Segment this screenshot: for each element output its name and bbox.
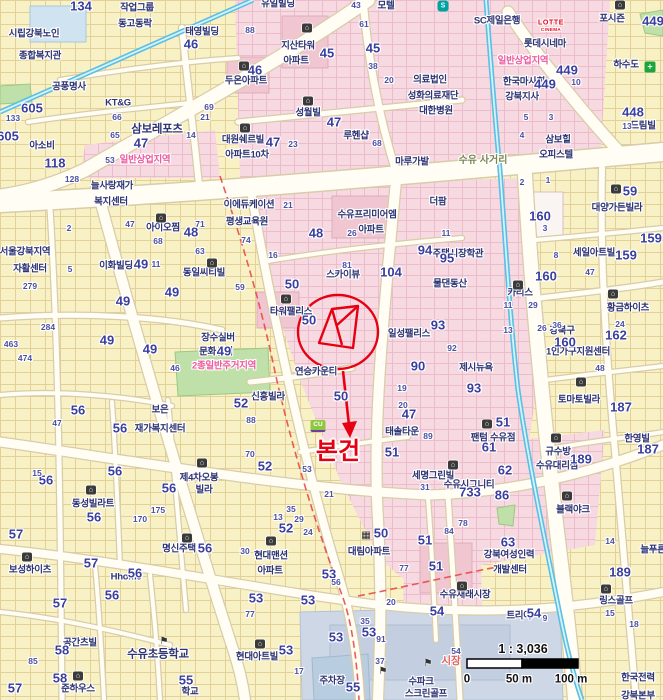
flag-icon: ⚑ [424,659,433,669]
map-label: 187 [637,443,659,456]
map-label: 세일아트빌 [573,248,615,258]
map-label: 14 [605,537,614,546]
map-label: 38 [368,62,377,71]
map-label: 733 [459,486,481,499]
scale-ratio: 1 : 3,036 [498,643,547,656]
map-label: 57 [8,682,22,695]
map-label: 46 [248,64,262,77]
map-label: 57 [84,557,98,570]
map-label: 56 [113,422,127,435]
building-icon: ⌂ [608,290,618,299]
map-label: 160 [535,270,557,283]
map-label: 53 [105,156,114,165]
map-label: 29 [528,301,537,310]
map-label: 53 [249,592,263,605]
map-label: 15 [32,469,41,478]
map-label: 47 [52,419,61,428]
map-label: 9 [543,614,548,623]
map-label: 서울강북지역 [0,247,50,257]
map-label: 개발센터 [493,565,527,575]
map-label: 카리스 [507,288,532,298]
map-label: 20 [386,598,395,607]
map-label: 오피스텔 [539,150,573,160]
map-label: 3 [543,224,548,233]
map-label: 71 [195,220,204,229]
map-label: 복지센터 [94,197,128,207]
map-label: 46 [170,364,179,373]
map-label: 링스골프 [599,596,633,606]
map-label: 93 [467,382,481,395]
building-icon: ⌂ [513,281,523,290]
map-label: 36 [552,321,561,330]
map-label: 강북본부 [621,691,655,700]
scale-tick-100: 100 m [555,674,588,686]
map-label: 종합복지관 [19,51,61,61]
map-label: 93 [431,319,445,332]
map-label: 유일빌딩 [261,0,295,9]
map-label: 45 [320,47,334,60]
map-label: 이에듀케이션 [224,200,275,210]
building-icon: ⌂ [482,420,492,429]
map-label: 170 [133,515,147,524]
map-label: 57 [9,528,23,541]
map-label: 20 [398,401,407,410]
building-icon: ⌂ [239,62,249,71]
map-label: 2 [67,224,72,233]
subject-property-label: 본건 [316,440,360,464]
map-label: 53 [302,465,311,474]
map-label: 58 [53,672,67,685]
map-label: 175 [151,506,165,515]
map-label: 29 [294,515,303,524]
map-label: 47 [585,268,594,277]
map-label: 47 [266,136,280,149]
map-label: 23 [288,140,297,149]
map-label: 제4차오봉 [180,473,219,483]
map-label: KT&G [105,98,131,108]
map-label: 66 [112,113,121,122]
map-label: 3 [549,113,554,122]
map-label: 명신주택 [162,544,196,554]
map-label: 31 [420,483,429,492]
map-label: 21 [283,201,292,210]
map-label: 449 [556,64,578,77]
map-label: 51 [385,446,399,459]
map-label: 규수방 [545,447,570,457]
map-label: 49 [143,343,157,356]
map-label: 16 [268,251,277,260]
map-label: 68 [372,139,381,148]
map-label: 10 [571,78,580,87]
map-label: 605 [21,102,43,115]
map-label: 47 [134,137,148,150]
map-label: 56 [87,511,101,524]
map-label: 53 [329,631,343,644]
map-label: 86 [495,489,509,502]
map-label: 삼보레포츠 [131,124,182,136]
map-label: 58 [55,644,69,657]
map-label: 56 [108,465,122,478]
building-icon: ⌂ [73,672,83,681]
map-label: 18 [629,620,638,629]
map-label: 51 [429,560,443,573]
map-label: 강북지사 [505,92,539,102]
map-label: 70 [245,450,254,459]
map-label: 56 [128,567,142,580]
map-label: 24 [615,320,624,329]
map-label: 빌라 [196,485,213,495]
map-label: 449 [534,78,556,91]
map-label: 52 [258,460,272,473]
map-label: 11 [504,301,513,310]
scale-tick-50: 50 m [506,674,532,686]
map-label: 아소비 [29,141,54,151]
map-label: 68 [153,237,162,246]
map-label: 성화의료재단 [408,91,459,101]
map-label: 284 [41,323,55,332]
map-label: 78 [458,519,467,528]
map-label: 17 [294,667,303,676]
map-label: 스카이뷰 [326,270,360,280]
map-label: 55 [179,674,193,687]
map-label: 52 [279,522,293,535]
map-label: 160 [529,210,551,223]
map-label: 74 [241,236,250,245]
flag-icon: ⚑ [160,637,169,647]
building-icon: ⌂ [197,459,207,468]
map-label: 162 [605,329,627,342]
map-label: 삼보힐 [545,135,570,145]
map-label: 일반상업지역 [120,155,171,165]
map-label: 54 [430,605,444,618]
map-label: 59 [623,185,637,198]
map-label: 94 [418,244,432,257]
map-label: 50 [302,314,316,327]
map-label: 35 [360,617,369,626]
map-label: 50 [285,278,299,291]
apartment-grid-icon: ▦ [361,531,370,541]
map-label: 13 [622,122,631,131]
map-label: 평생교육원 [226,217,268,227]
map-label: 95 [440,252,454,265]
map-label: 포시즌 [599,14,624,24]
map-label: 태솔타운 [385,427,419,437]
map-label: 동일씨티빌 [183,268,225,278]
map-label: 19 [397,384,406,393]
map-label: 보성하이츠 [9,565,51,575]
map-label: 88 [245,26,254,35]
building-icon: ⌂ [448,461,458,470]
map-label: 84 [444,527,453,536]
map-label: 77 [399,564,408,573]
map-label: 26 [347,229,356,238]
map-label: 53 [362,626,376,639]
map-label: 85 [28,657,37,666]
map-label: 24 [303,528,312,537]
map-label: 대원쉐르빌 [222,135,264,145]
map-label: 56 [71,404,85,417]
map-label: 160 [554,336,576,349]
map-label: 45 [366,42,380,55]
map-label: 현대맨션 [254,551,288,561]
map-label: 동성빌라트 [72,499,114,509]
map-label: 51 [496,416,510,429]
map-label: 91 [376,635,385,644]
map-label: 블랙야크 [556,505,590,515]
flag-icon: ⚑ [379,667,388,677]
map-label: 30 [240,547,249,556]
map-label: 2 [520,178,525,187]
map-label: LOTTE [538,20,564,27]
map-label: 55 [346,681,360,694]
map-label: 8 [554,251,559,260]
map-label: 89 [423,432,432,441]
map-label: 늘사랑재가 [91,181,133,191]
map-label: 황금하이츠 [607,303,649,313]
map-label: 토마토빌라 [558,395,600,405]
map-label: 48 [309,227,323,240]
building-icon: ⌂ [601,585,611,594]
scale-tick-0: 0 [464,674,470,686]
map-label: 90 [411,360,425,373]
building-icon: ⌂ [551,434,561,443]
map-label: 자활센터 [13,264,47,274]
map-label: 수유프리미어엠 [337,210,396,220]
map-label: 수파크 [408,677,433,687]
map-label: 449 [642,15,663,28]
map-label: 43 [351,1,360,10]
map-label: 11 [442,229,451,238]
map-label: 118 [45,157,66,170]
map-label: 54 [451,647,460,656]
map-label: 물댄동산 [433,279,467,289]
map-label: 두온아파트 [225,76,267,86]
map-label: 지산타워 [281,41,315,51]
map-label: 59 [235,283,244,292]
map-label: 시장 [441,656,460,667]
station-icon: S [438,1,449,12]
map-label: 57 [53,597,67,610]
building-icon: ⌂ [207,259,217,268]
map-label: 187 [610,401,632,414]
map-label: 35 [286,505,295,514]
building-icon: ⌂ [576,378,586,387]
hospital-cross-icon: + [645,62,656,73]
map-label: 48 [595,364,604,373]
map-label: 제시뉴욕 [459,363,493,373]
map-label: 21 [324,490,333,499]
map-label: 수유 사거리 [459,156,508,166]
map-label: CINEMA [541,28,561,33]
map-label: 모텔 [378,1,395,11]
map-label: 62 [498,464,512,477]
map-label: 현대아트빌 [236,652,278,662]
map-label: 53 [279,644,293,657]
map-label: 53 [301,594,315,607]
map-label: 하수도 [613,60,638,70]
map-label: 56 [198,542,212,555]
map-label: 장수실버 [201,333,235,343]
building-icon: ⌂ [457,582,467,591]
map-label: 주차장 [319,676,344,686]
map-label: 15 [605,609,614,618]
map-label: 63 [501,536,515,549]
map-label: 81 [342,261,351,270]
map-label: 104 [380,266,402,279]
map-label: 77 [245,610,254,619]
map-label: 아파트 [283,56,308,66]
map-label: SC제일은행 [474,16,520,26]
map-label: 13 [503,326,512,335]
map-label: 49 [134,258,148,271]
map-label: 일반상업지역 [498,56,549,66]
map-label: 50 [334,390,348,403]
map-label: 학교 [182,687,199,697]
map-label: 52 [234,397,248,410]
map-label: 50 [374,527,388,540]
map-label: 88 [246,416,255,425]
building-icon: ⌂ [86,486,96,495]
map-label: 보은 [152,405,169,415]
map-label: 159 [615,249,637,262]
map-label: 61 [359,20,368,29]
map-label: 26 [537,324,546,333]
building-icon: ⌂ [303,97,313,106]
map-label: 의료법인 [413,75,447,85]
map-label: 20 [384,76,393,85]
map-label: 1 [546,176,551,185]
map-label: 47 [327,116,341,129]
map-label: 133 [6,114,20,123]
map-label: 37 [375,657,384,666]
building-icon: ⌂ [562,492,572,501]
map-label: 신흥빌라 [251,392,285,402]
map-label: 아이오찜 [146,223,180,233]
map-label: 성월빌 [295,108,320,118]
map-label: 189 [570,453,592,466]
map-label: 474 [18,354,32,363]
map-label: 연승카운티 [295,367,337,377]
map-label: 2종일반주거지역 [192,361,256,371]
map-label: 준하우스 [61,684,95,694]
building-icon: ⌂ [240,124,250,133]
map-label: 대한병원 [419,106,453,116]
map-label: 49 [217,345,231,358]
building-icon: ⌂ [281,295,291,304]
map-label: 마루가발 [395,157,429,167]
building-icon: ⌂ [255,640,265,649]
map-label: 한국전력 [621,673,655,683]
cu-store-icon: CU [311,420,326,432]
building-icon: ⌂ [266,537,276,546]
map-label: 대림아파트 [348,547,390,557]
map-label: 아파트10차 [225,150,269,160]
map-label: 루헨샵 [343,131,368,141]
map-label: 대양가든빌라 [592,203,643,213]
map-label: 51 [418,534,432,547]
map-label: 태영빌딩 [185,27,219,37]
building-icon: ⌂ [302,24,312,33]
map-label: 수유재래시장 [440,590,491,600]
map-label: 14 [186,131,195,140]
map-label: 이화빌딩 [99,261,133,271]
building-icon: ⌂ [22,553,32,562]
map-label: 일성팰리스 [388,329,430,339]
map-label: 69 [204,103,213,112]
map-label: 49 [100,334,114,347]
map-label: 463 [4,340,18,349]
map-label: 공풍명사 [52,82,86,92]
map-label: 강북여성인력 [484,550,535,560]
building-icon: ⌂ [615,1,625,10]
map-label: 49 [116,295,130,308]
map-label: 스크린골프 [405,689,447,699]
map-label: 56 [331,578,340,587]
map-label: 49 [165,286,179,299]
map-label: 4 [520,131,525,140]
map-label: 아파트 [358,225,383,235]
building-icon: ⌂ [182,534,192,543]
map-label: 54 [527,607,541,620]
map-label: 21 [200,113,209,122]
map-label: 11 [152,260,161,269]
map-label: 롯데시네마 [524,39,566,49]
map-label: 92 [447,344,456,353]
map-label: 46 [184,38,198,51]
map-label: 189 [609,566,631,579]
map-label: 수유초등학교 [127,649,189,661]
map-label: 5 [524,113,529,122]
map-label: 134 [70,0,92,13]
map-label: 동고동락 [118,19,152,29]
map-label: 재가복지센터 [135,424,186,434]
map-label: 드림빌 [630,121,655,131]
map-label: 늘푸른 [640,545,663,555]
building-icon: ⌂ [611,185,621,194]
map-label: 56 [162,482,176,495]
map-canvas[interactable]: 작업그룹동고동락태영빌딩시립강북노인종합복지관공풍명사KT&G아소비유일빌딩모텔… [0,0,663,700]
map-label: 5 [68,265,73,274]
scale-bar [467,659,578,668]
map-label: 128 [65,175,79,184]
map-label: 시립강북노인 [9,29,60,39]
map-label: 65 [110,131,119,140]
map-label: 605 [0,130,19,143]
map-label: 63 [195,247,204,256]
map-label: 61 [482,441,496,454]
map-label: 279 [23,282,37,291]
building-icon: ⌂ [156,214,166,223]
map-label: 아파트 [257,566,282,576]
map-label: 159 [640,232,662,245]
map-label: 47 [125,220,134,229]
map-label: 56 [105,589,119,602]
map-label: 448 [622,106,644,119]
map-label: 더팜 [430,197,447,207]
map-label: 작업그룹 [120,3,154,13]
map-label: 13 [273,513,282,522]
